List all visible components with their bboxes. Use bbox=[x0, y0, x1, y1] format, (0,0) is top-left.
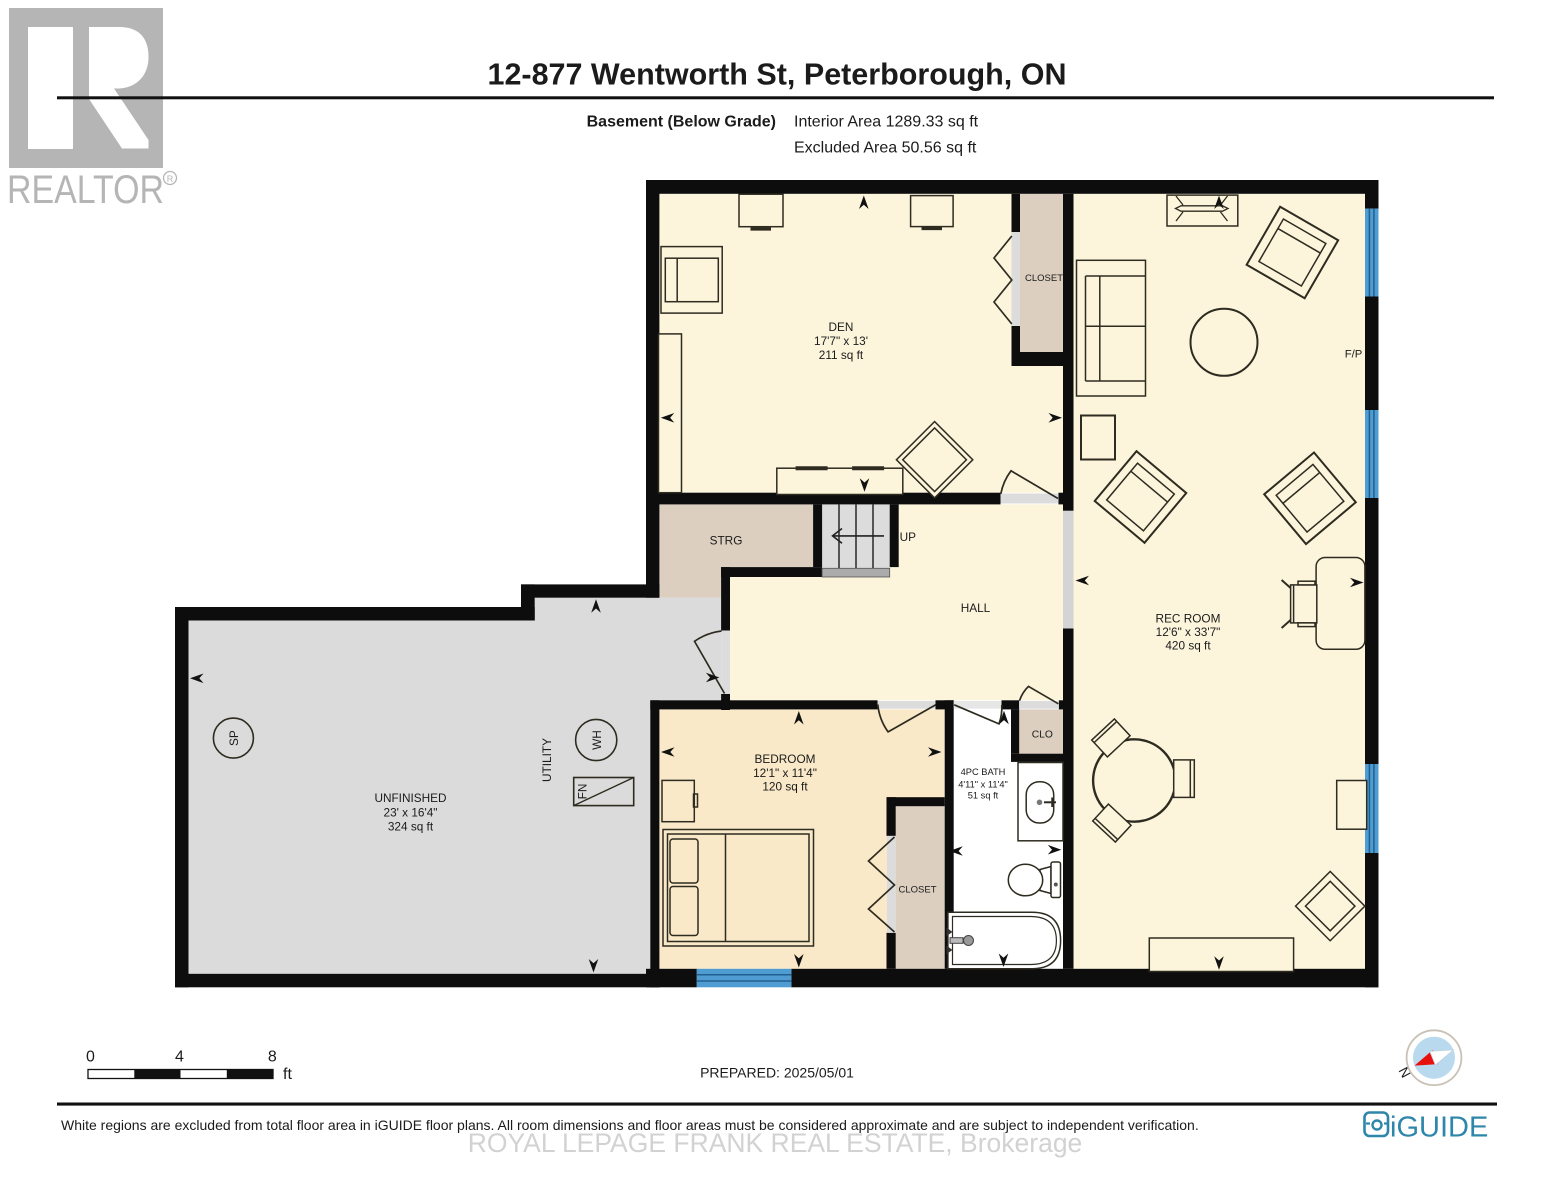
svg-text:PREPARED: 2025/05/01: PREPARED: 2025/05/01 bbox=[700, 1064, 854, 1080]
svg-text:0: 0 bbox=[86, 1049, 95, 1066]
svg-text:12-877 Wentworth St, Peterboro: 12-877 Wentworth St, Peterborough, ON bbox=[487, 57, 1066, 91]
svg-text:420 sq ft: 420 sq ft bbox=[1165, 638, 1211, 652]
svg-text:R: R bbox=[167, 174, 174, 184]
svg-text:4'11" x 11'4": 4'11" x 11'4" bbox=[958, 779, 1008, 789]
svg-text:324 sq ft: 324 sq ft bbox=[388, 820, 434, 834]
svg-text:ft: ft bbox=[283, 1066, 292, 1083]
svg-text:iGUIDE: iGUIDE bbox=[1390, 1112, 1488, 1144]
svg-text:120 sq ft: 120 sq ft bbox=[762, 779, 808, 793]
svg-text:REC ROOM: REC ROOM bbox=[1156, 612, 1221, 626]
svg-text:211 sq ft: 211 sq ft bbox=[819, 348, 864, 362]
svg-text:Interior Area 1289.33 sq ft: Interior Area 1289.33 sq ft bbox=[794, 114, 979, 131]
svg-text:4PC BATH: 4PC BATH bbox=[961, 767, 1006, 777]
svg-text:UTILITY: UTILITY bbox=[540, 738, 554, 782]
svg-text:8: 8 bbox=[268, 1049, 277, 1066]
svg-text:REALTOR: REALTOR bbox=[7, 168, 164, 212]
svg-text:Basement (Below Grade): Basement (Below Grade) bbox=[587, 114, 776, 131]
svg-text:WH: WH bbox=[590, 730, 604, 750]
svg-text:CLOSET: CLOSET bbox=[898, 884, 936, 895]
svg-text:BEDROOM: BEDROOM bbox=[755, 752, 816, 766]
svg-text:UNFINISHED: UNFINISHED bbox=[374, 791, 446, 805]
svg-text:White regions are excluded fro: White regions are excluded from total fl… bbox=[61, 1117, 1199, 1133]
svg-text:DEN: DEN bbox=[829, 320, 854, 334]
svg-text:23' x 16'4": 23' x 16'4" bbox=[384, 805, 438, 819]
svg-text:Excluded Area 50.56 sq ft: Excluded Area 50.56 sq ft bbox=[794, 139, 977, 156]
svg-text:4: 4 bbox=[175, 1049, 184, 1066]
svg-text:SP: SP bbox=[227, 730, 241, 746]
svg-text:HALL: HALL bbox=[961, 601, 991, 615]
svg-text:STRG: STRG bbox=[710, 534, 743, 548]
svg-text:CLOSET: CLOSET bbox=[1025, 273, 1063, 284]
svg-text:N: N bbox=[1396, 1065, 1414, 1081]
svg-text:51 sq ft: 51 sq ft bbox=[968, 791, 999, 801]
svg-text:17'7" x 13': 17'7" x 13' bbox=[814, 334, 868, 348]
svg-text:UP: UP bbox=[900, 530, 917, 544]
svg-text:F/P: F/P bbox=[1345, 349, 1363, 361]
svg-text:12'6" x 33'7": 12'6" x 33'7" bbox=[1156, 625, 1221, 639]
svg-text:12'1" x 11'4": 12'1" x 11'4" bbox=[753, 766, 817, 780]
svg-text:CLO: CLO bbox=[1032, 729, 1053, 740]
svg-text:FN: FN bbox=[576, 784, 590, 800]
